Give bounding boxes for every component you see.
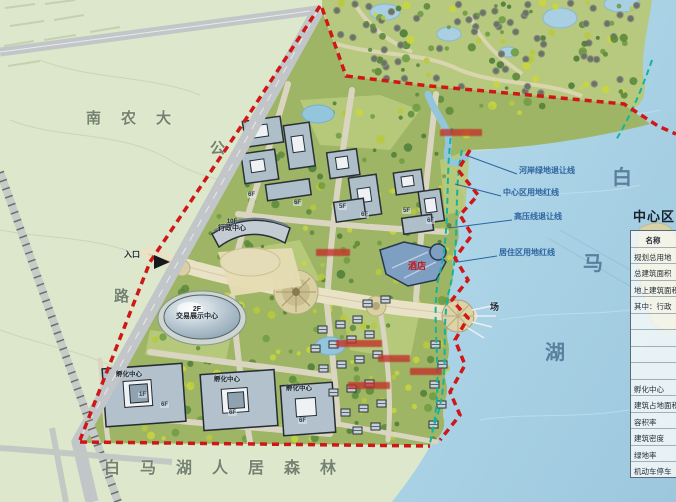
legend-row xyxy=(631,347,676,364)
legend-table: 名称 规划总用地总建筑面积地上建筑面积其中：行政孵化中心建筑占地面积容积率建筑密… xyxy=(630,230,676,478)
label-admin-center: 10F 行政中心 xyxy=(218,219,246,232)
label-hotel: 酒店 xyxy=(408,262,426,271)
label-expo-center: 2F 交易展示中心 xyxy=(176,306,218,320)
floor-tag: 6F xyxy=(228,410,237,416)
floor-tag: 6F xyxy=(293,200,302,206)
setback-callout-label: 高压线退让线 xyxy=(514,213,562,221)
setback-callout-label: 居住区用地红线 xyxy=(499,249,555,257)
legend-row: 绿地率 xyxy=(631,446,676,463)
legend-row xyxy=(631,363,676,380)
label-road-gong: 公 xyxy=(210,141,225,156)
floor-tag: 6F xyxy=(426,218,435,224)
legend-row: 规划总用地 xyxy=(631,248,676,265)
label-lake-ma: 马 xyxy=(583,254,603,274)
label-university: 南农大 xyxy=(86,111,191,126)
legend-row xyxy=(631,330,676,347)
legend-row: 机动车停车 xyxy=(631,462,676,478)
floor-tag: 5F xyxy=(402,208,411,214)
label-lake-bai: 白 xyxy=(612,168,632,188)
setback-callout-label: 中心区用地红线 xyxy=(503,189,559,197)
label-entrance: 入口 xyxy=(124,251,140,259)
legend-row: 地上建筑面积 xyxy=(631,281,676,298)
floor-tag: 6F xyxy=(298,418,307,424)
label-road-lu: 路 xyxy=(114,289,129,304)
legend-row: 建筑占地面积 xyxy=(631,396,676,413)
label-layer: 南农大 公 路 白马湖人居森林 白 马 湖 入口 场 10F 行政中心 2F 交… xyxy=(0,0,676,502)
floor-tag: 6F xyxy=(247,192,256,198)
legend-row xyxy=(631,314,676,331)
floor-tag: 6F xyxy=(360,212,369,218)
illegible-red-label xyxy=(378,355,410,362)
masterplan-map: 南农大 公 路 白马湖人居森林 白 马 湖 入口 场 10F 行政中心 2F 交… xyxy=(0,0,676,502)
illegible-red-label xyxy=(410,368,442,375)
label-incubator-1: 孵化中心 xyxy=(116,372,142,379)
expo-floors: 2F xyxy=(176,306,218,313)
legend-row: 孵化中心 xyxy=(631,380,676,397)
expo-name: 交易展示中心 xyxy=(176,313,218,320)
admin-name: 行政中心 xyxy=(218,225,246,232)
illegible-red-label xyxy=(348,382,390,389)
legend-title: 中心区 xyxy=(633,206,676,225)
legend-row: 总建筑面积 xyxy=(631,264,676,281)
illegible-red-label xyxy=(336,340,382,347)
floor-tag: 5F xyxy=(338,204,347,210)
setback-callout-label: 河岸绿地退让线 xyxy=(519,167,575,175)
floor-tag: 6F xyxy=(160,402,169,408)
label-lake-hu: 湖 xyxy=(545,343,565,363)
illegible-red-label xyxy=(440,129,482,136)
label-incubator-3: 孵化中心 xyxy=(286,386,312,393)
legend-row: 建筑密度 xyxy=(631,429,676,446)
legend-header: 名称 xyxy=(631,231,676,248)
legend-row: 容积率 xyxy=(631,413,676,430)
legend-row: 其中：行政 xyxy=(631,297,676,314)
illegible-red-label xyxy=(316,249,350,256)
label-plaza: 场 xyxy=(490,303,499,312)
label-incubator-2: 孵化中心 xyxy=(214,377,240,384)
label-forest-belt: 白马湖人居森林 xyxy=(104,461,356,477)
floor-tag: 1F xyxy=(138,392,147,398)
